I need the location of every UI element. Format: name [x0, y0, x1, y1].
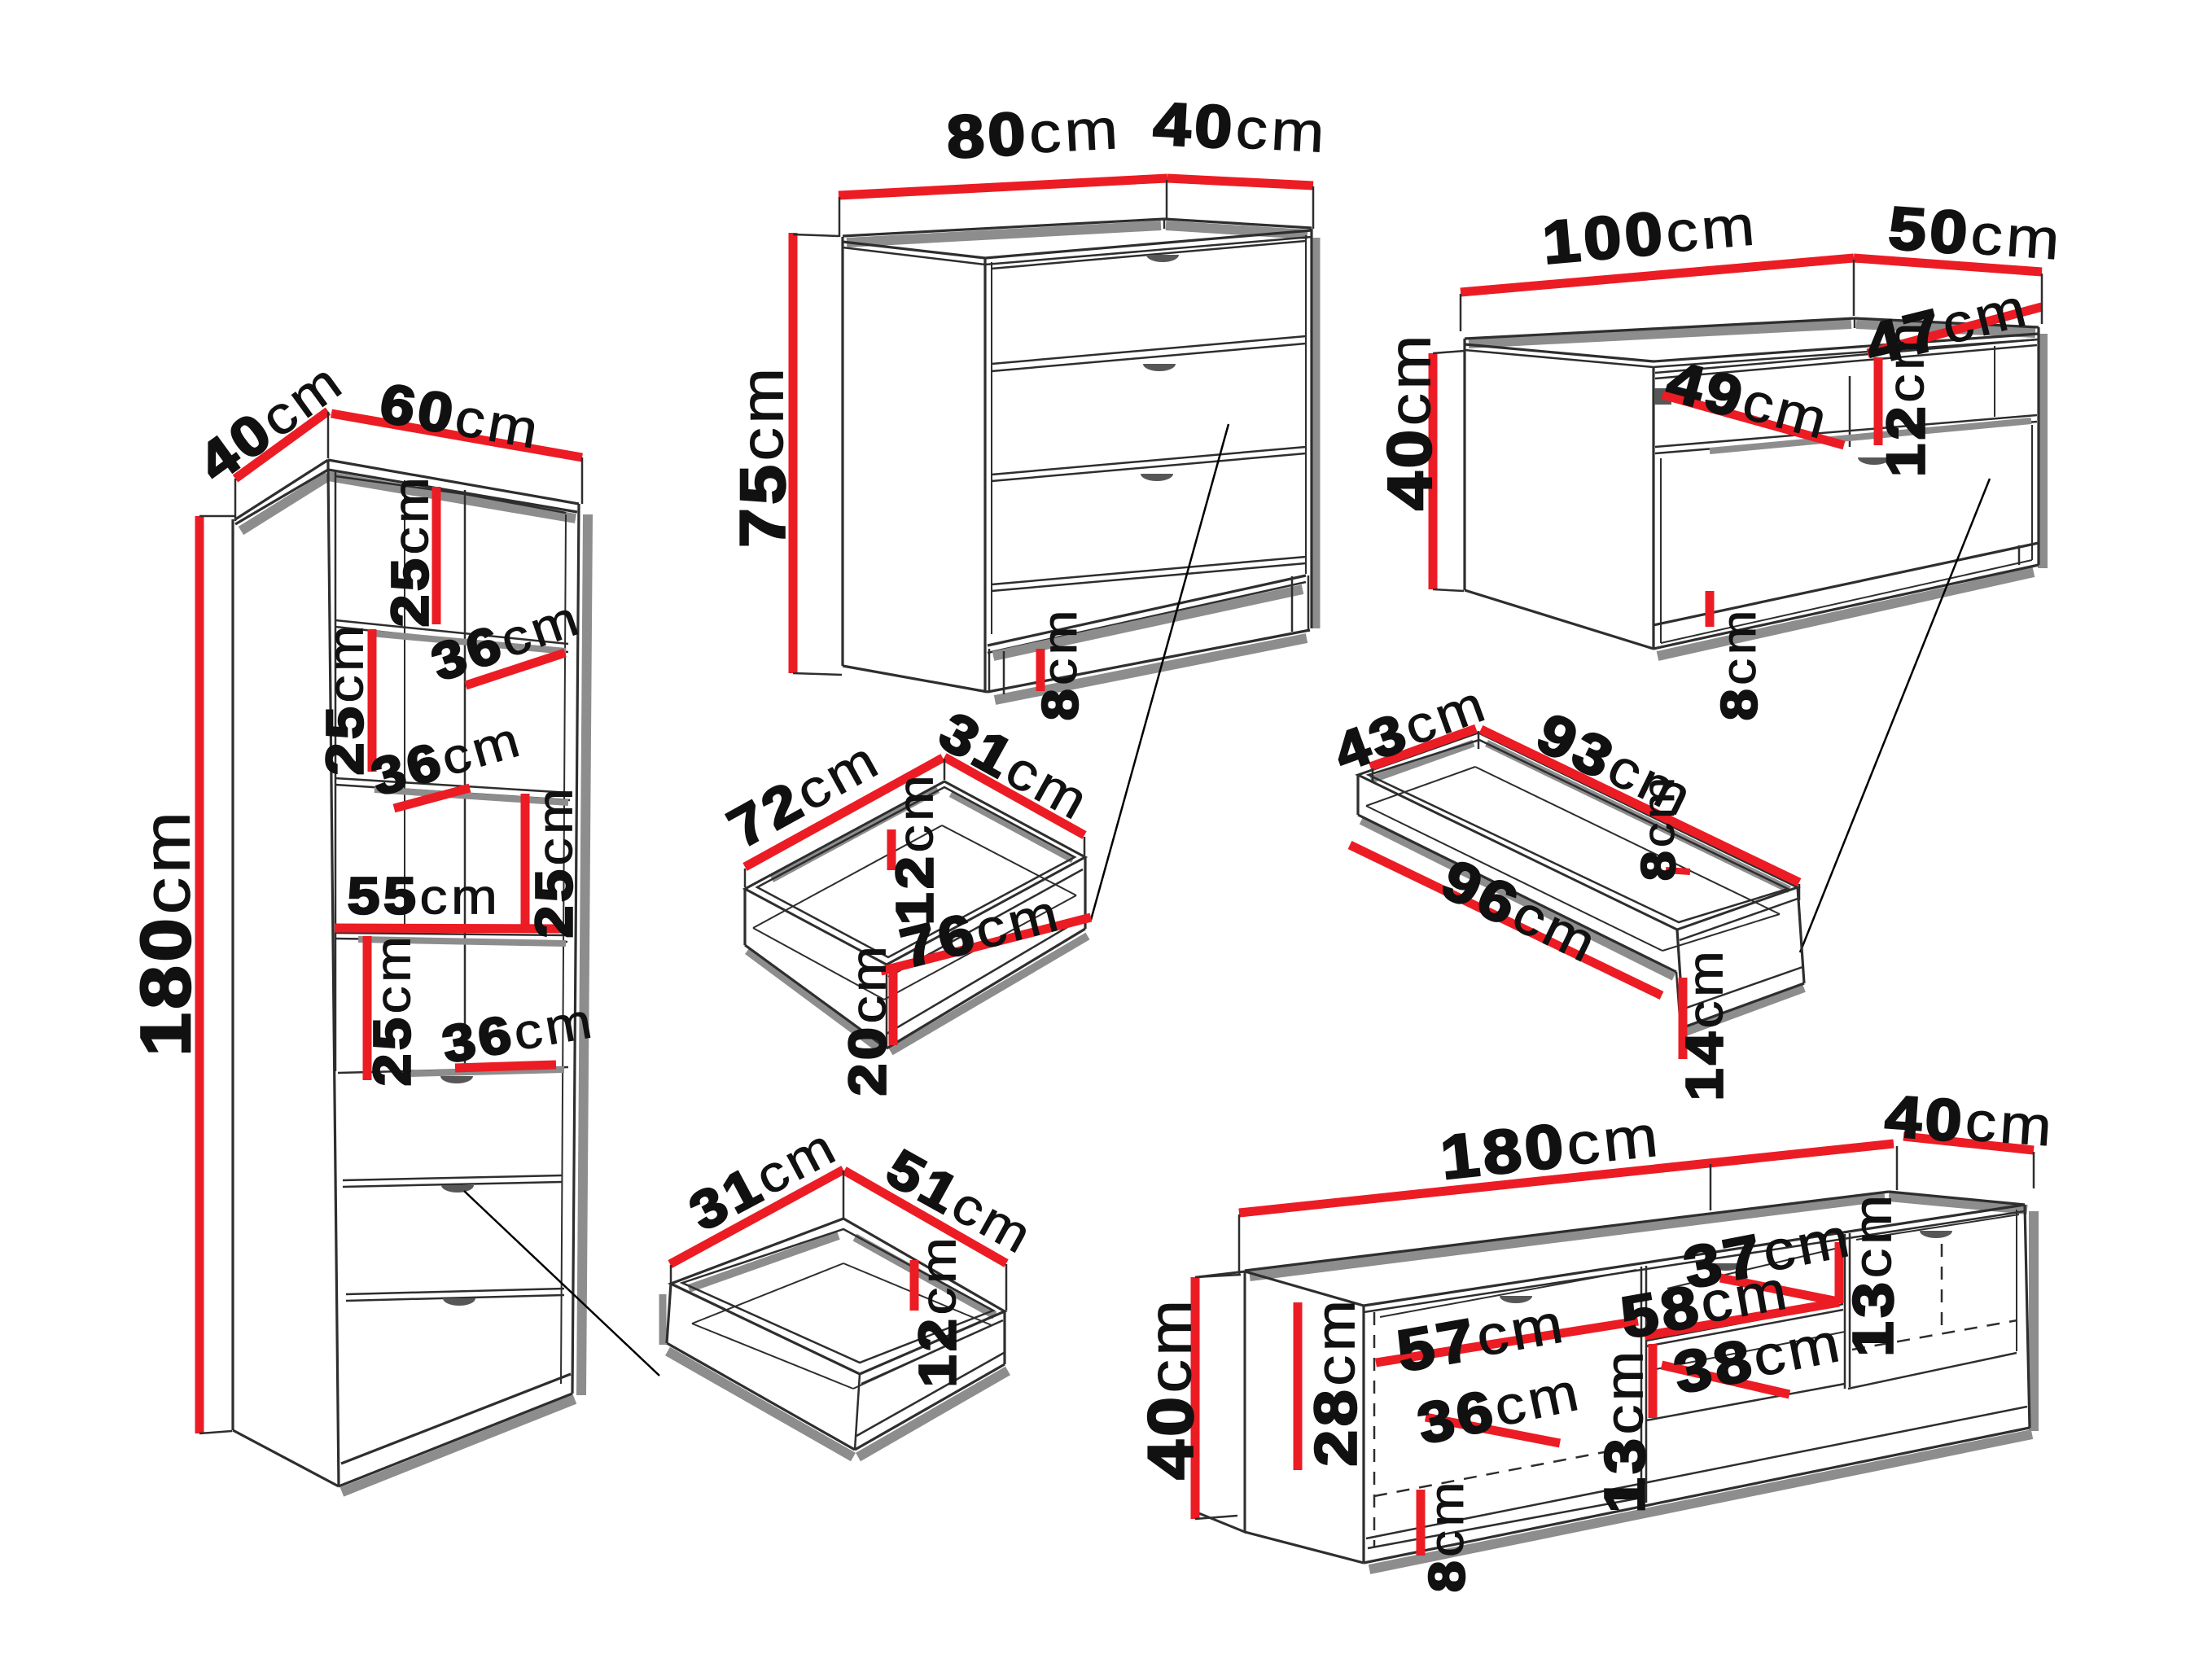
svg-text:20cm: 20cm	[839, 943, 897, 1096]
svg-text:80cm: 80cm	[945, 94, 1124, 171]
svg-text:13cm: 13cm	[1592, 1347, 1656, 1513]
svg-text:40cm: 40cm	[1152, 90, 1330, 166]
svg-text:40cm: 40cm	[1376, 331, 1445, 510]
svg-text:75cm: 75cm	[726, 364, 798, 548]
svg-text:14cm: 14cm	[1675, 947, 1734, 1101]
svg-text:12cm: 12cm	[1876, 319, 1935, 477]
svg-text:8cm: 8cm	[1710, 606, 1767, 720]
svg-text:50cm: 50cm	[1886, 194, 2065, 274]
svg-text:25cm: 25cm	[363, 933, 422, 1087]
svg-text:8cm: 8cm	[1032, 606, 1088, 720]
svg-text:8cm: 8cm	[1418, 1478, 1475, 1592]
svg-text:8cm: 8cm	[1632, 773, 1685, 881]
svg-text:180cm: 180cm	[127, 807, 205, 1057]
svg-text:25cm: 25cm	[381, 474, 440, 628]
svg-text:25cm: 25cm	[525, 785, 584, 939]
svg-text:12cm: 12cm	[886, 772, 944, 926]
svg-text:12cm: 12cm	[909, 1234, 967, 1388]
svg-text:40cm: 40cm	[1134, 1296, 1206, 1480]
svg-text:13cm: 13cm	[1841, 1191, 1904, 1357]
svg-text:40cm: 40cm	[1883, 1083, 2057, 1160]
svg-text:55cm: 55cm	[348, 867, 502, 926]
svg-text:28cm: 28cm	[1303, 1296, 1369, 1466]
